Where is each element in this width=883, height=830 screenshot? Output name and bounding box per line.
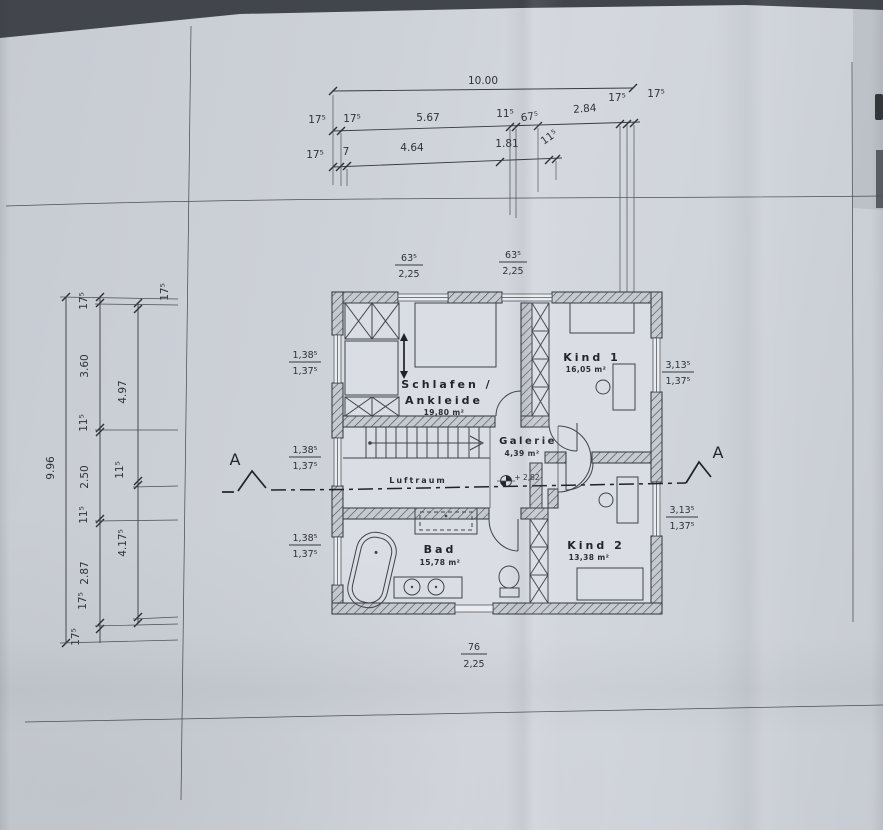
- room-area: 15,78 m²: [420, 558, 461, 567]
- win-dim: 3,13⁵: [670, 505, 695, 516]
- win-dim: 1,37⁵: [666, 376, 691, 387]
- room-label: Schlafen /: [401, 378, 492, 391]
- dim-label: 11⁵: [539, 128, 560, 148]
- dim-label: 67⁵: [520, 110, 539, 124]
- floor-plan: Schlafen / Ankleide 19,80 m² Kind 1 16,0…: [332, 292, 662, 614]
- win-dim: 1,37⁵: [293, 461, 318, 472]
- dim-total-height: 9.96: [45, 456, 57, 480]
- dim-label: 17⁵: [647, 88, 665, 100]
- dimension-chain-left: 9.96 17⁵ 3.60 11⁵ 2.50 11⁵ 2.87 17⁵ 17⁵ …: [45, 283, 178, 647]
- win-dim: 76: [468, 642, 480, 653]
- win-dim: 1,37⁵: [670, 521, 695, 532]
- win-dim: 1,37⁵: [293, 549, 318, 560]
- dim-total-width: 10.00: [468, 75, 498, 87]
- dim-label: 11⁵: [78, 414, 90, 432]
- photo-edge-mark: [876, 150, 883, 208]
- opening-bottom: [455, 605, 493, 612]
- dim-label: 17⁵: [70, 628, 82, 646]
- photo-edge-mark: [875, 94, 883, 120]
- dim-label: 7: [343, 146, 350, 158]
- win-dim: 63⁵: [401, 253, 417, 264]
- section-label-left: A: [230, 450, 241, 469]
- dim-label: 17⁵: [306, 149, 324, 161]
- win-dim: 1,37⁵: [293, 366, 318, 377]
- room-label: Bad: [424, 543, 457, 556]
- dim-label: 3.60: [79, 354, 91, 377]
- dim-label: 11⁵: [496, 108, 514, 120]
- win-dim: 2,25: [463, 659, 484, 670]
- dim-label: 11⁵: [114, 461, 126, 479]
- section-label-right: A: [713, 443, 724, 462]
- dim-label: 11⁵: [78, 506, 90, 524]
- dim-label: 2.84: [573, 102, 597, 116]
- dim-label: 17⁵: [608, 92, 626, 104]
- room-label: Kind 1: [563, 351, 620, 364]
- room-area: 4,39 m²: [504, 449, 539, 458]
- dim-label: 2.87: [79, 561, 91, 584]
- win-dim: 2,25: [502, 266, 523, 277]
- luftraum-label: Luftraum: [389, 476, 446, 485]
- level-value: + 2,82: [514, 473, 540, 482]
- win-dim: 1,38⁵: [293, 445, 318, 456]
- dim-label: 4.17⁵: [117, 529, 129, 557]
- win-dim: 1,38⁵: [293, 533, 318, 544]
- room-area: 13,38 m²: [569, 553, 610, 562]
- dim-label: 17⁵: [343, 113, 361, 125]
- floor-plan-drawing: 10.00 17⁵ 17⁵ 5.67 11⁵ 67⁵ 2.84 17⁵ 17⁵ …: [0, 0, 883, 830]
- dim-label: 4.64: [400, 142, 424, 154]
- win-dim: 1,38⁵: [293, 350, 318, 361]
- table-edge-top: [0, 0, 883, 38]
- room-area: 16,05 m²: [566, 365, 607, 374]
- room-label: Galerie: [499, 436, 557, 447]
- dim-label: 2.50: [79, 465, 91, 488]
- dim-label: 5.67: [416, 112, 439, 124]
- room-label: Ankleide: [405, 394, 483, 407]
- win-dim: 2,25: [398, 269, 419, 280]
- dim-label: 4.97: [117, 380, 129, 403]
- dim-label: 17⁵: [159, 283, 171, 301]
- dim-label: 17⁵: [77, 592, 89, 610]
- room-area: 19,80 m²: [424, 408, 465, 417]
- photographed-blueprint-sheet: 10.00 17⁵ 17⁵ 5.67 11⁵ 67⁵ 2.84 17⁵ 17⁵ …: [0, 0, 883, 830]
- dim-label: 1.81: [495, 138, 518, 150]
- win-dim: 3,13⁵: [666, 360, 691, 371]
- dim-label: 17⁵: [78, 292, 90, 310]
- room-label: Kind 2: [567, 539, 624, 552]
- dim-label: 17⁵: [308, 114, 326, 126]
- win-dim: 63⁵: [505, 250, 521, 261]
